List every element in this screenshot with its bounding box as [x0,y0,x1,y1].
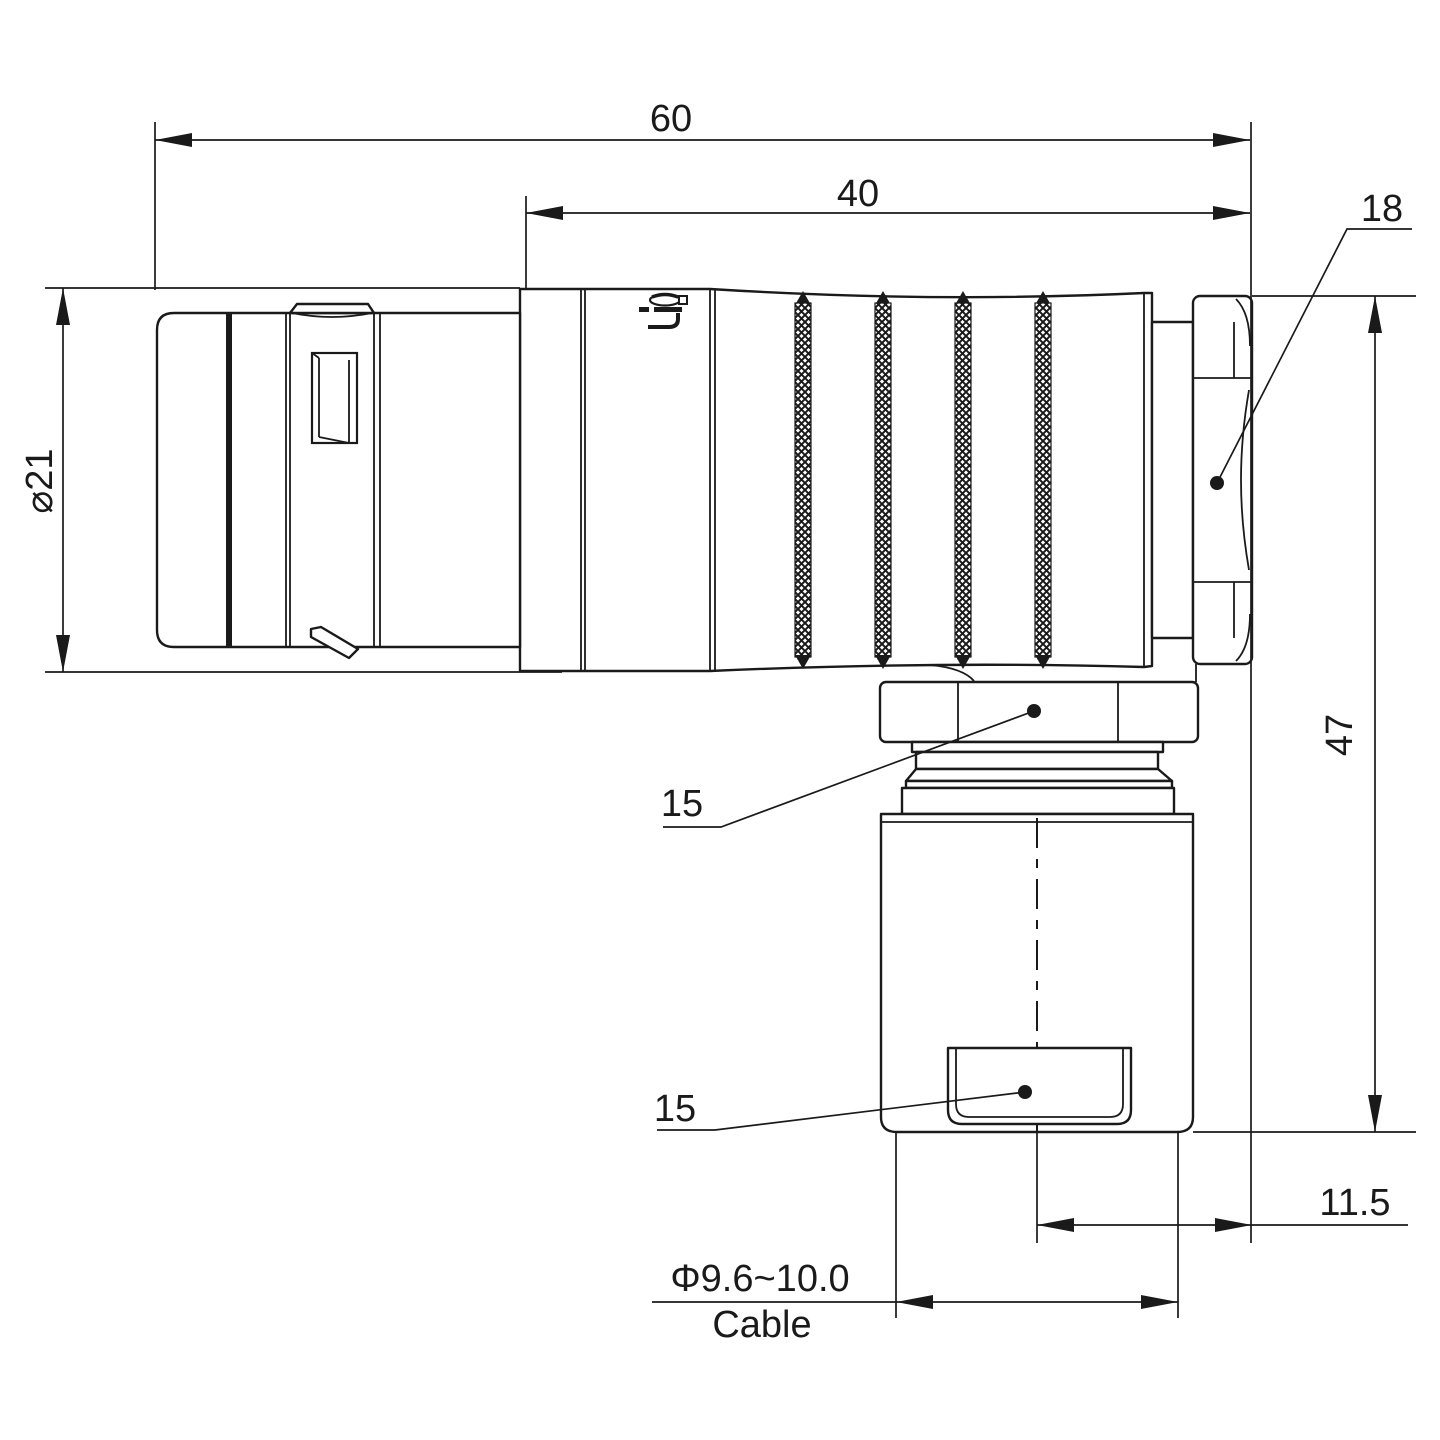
latch-window [312,353,357,443]
cable-bushing [948,1048,1131,1124]
dim-60-label: 60 [650,98,692,140]
dim-15-top-label: 15 [661,783,703,825]
neck [1152,322,1193,638]
knurl-strip [875,291,891,669]
knurl-strip [795,291,811,669]
dim-15-bottom-label: 15 [654,1088,696,1130]
dim-18-label: 18 [1361,188,1403,230]
dim-40-label: 40 [837,173,879,215]
dim-diameter-label: ⌀21 [19,448,61,513]
connector-drawing-page: Lightany [0,0,1440,1440]
dim-11-5-label: 11.5 [1319,1182,1390,1224]
connector-drawing: Lightany [0,0,1440,1440]
dim-cable-word-label: Cable [712,1304,811,1346]
knurl-strip [1035,291,1051,669]
knurl-strip [955,291,971,669]
dim-47-label: 47 [1319,714,1361,756]
main-housing [520,289,1152,671]
strain-relief-stack [902,742,1174,814]
elbow-transition [930,664,1196,682]
dim-cable-diameter-label: Φ9.6~10.0 [670,1258,849,1300]
dim-40 [526,196,1250,288]
shell-thick-band [226,313,232,647]
key-tab [290,304,374,313]
